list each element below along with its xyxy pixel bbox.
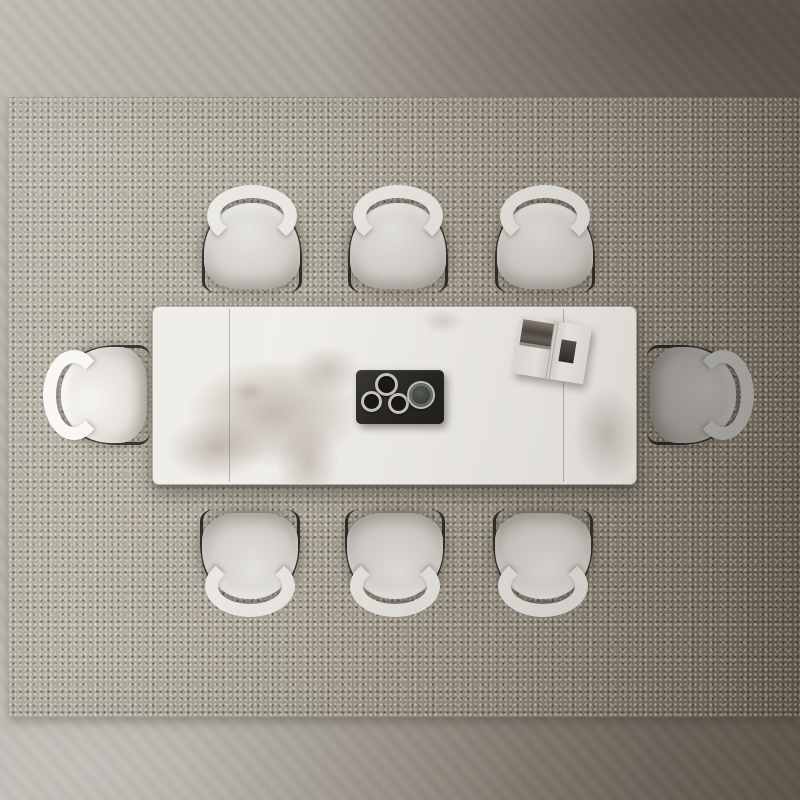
- chair-right-end: [644, 341, 756, 449]
- chair-backrest: [498, 555, 588, 617]
- chair-top-center: [344, 183, 452, 295]
- glass-tumbler: [407, 381, 435, 409]
- dining-table: [152, 306, 637, 485]
- chair-backrest: [692, 350, 754, 440]
- book-photo-spread: [519, 319, 554, 350]
- chair-backrest: [207, 185, 297, 247]
- espresso-cup-2: [361, 391, 382, 412]
- chair-left-end: [41, 341, 153, 449]
- serving-tray: [356, 370, 444, 424]
- chair-top-right: [491, 183, 599, 295]
- chair-backrest: [350, 555, 440, 617]
- chair-backrest: [500, 185, 590, 247]
- book-image-block: [558, 339, 576, 363]
- chair-top-left: [198, 183, 306, 295]
- table-slab-seam-left: [229, 309, 230, 482]
- chair-bottom-right: [489, 507, 597, 619]
- espresso-cup-3: [388, 393, 409, 414]
- open-book: [512, 316, 592, 385]
- chair-backrest: [353, 185, 443, 247]
- chair-bottom-center: [341, 507, 449, 619]
- chair-backrest: [205, 555, 295, 617]
- product-photo: [0, 0, 800, 800]
- chair-bottom-left: [196, 507, 304, 619]
- chair-backrest: [43, 350, 105, 440]
